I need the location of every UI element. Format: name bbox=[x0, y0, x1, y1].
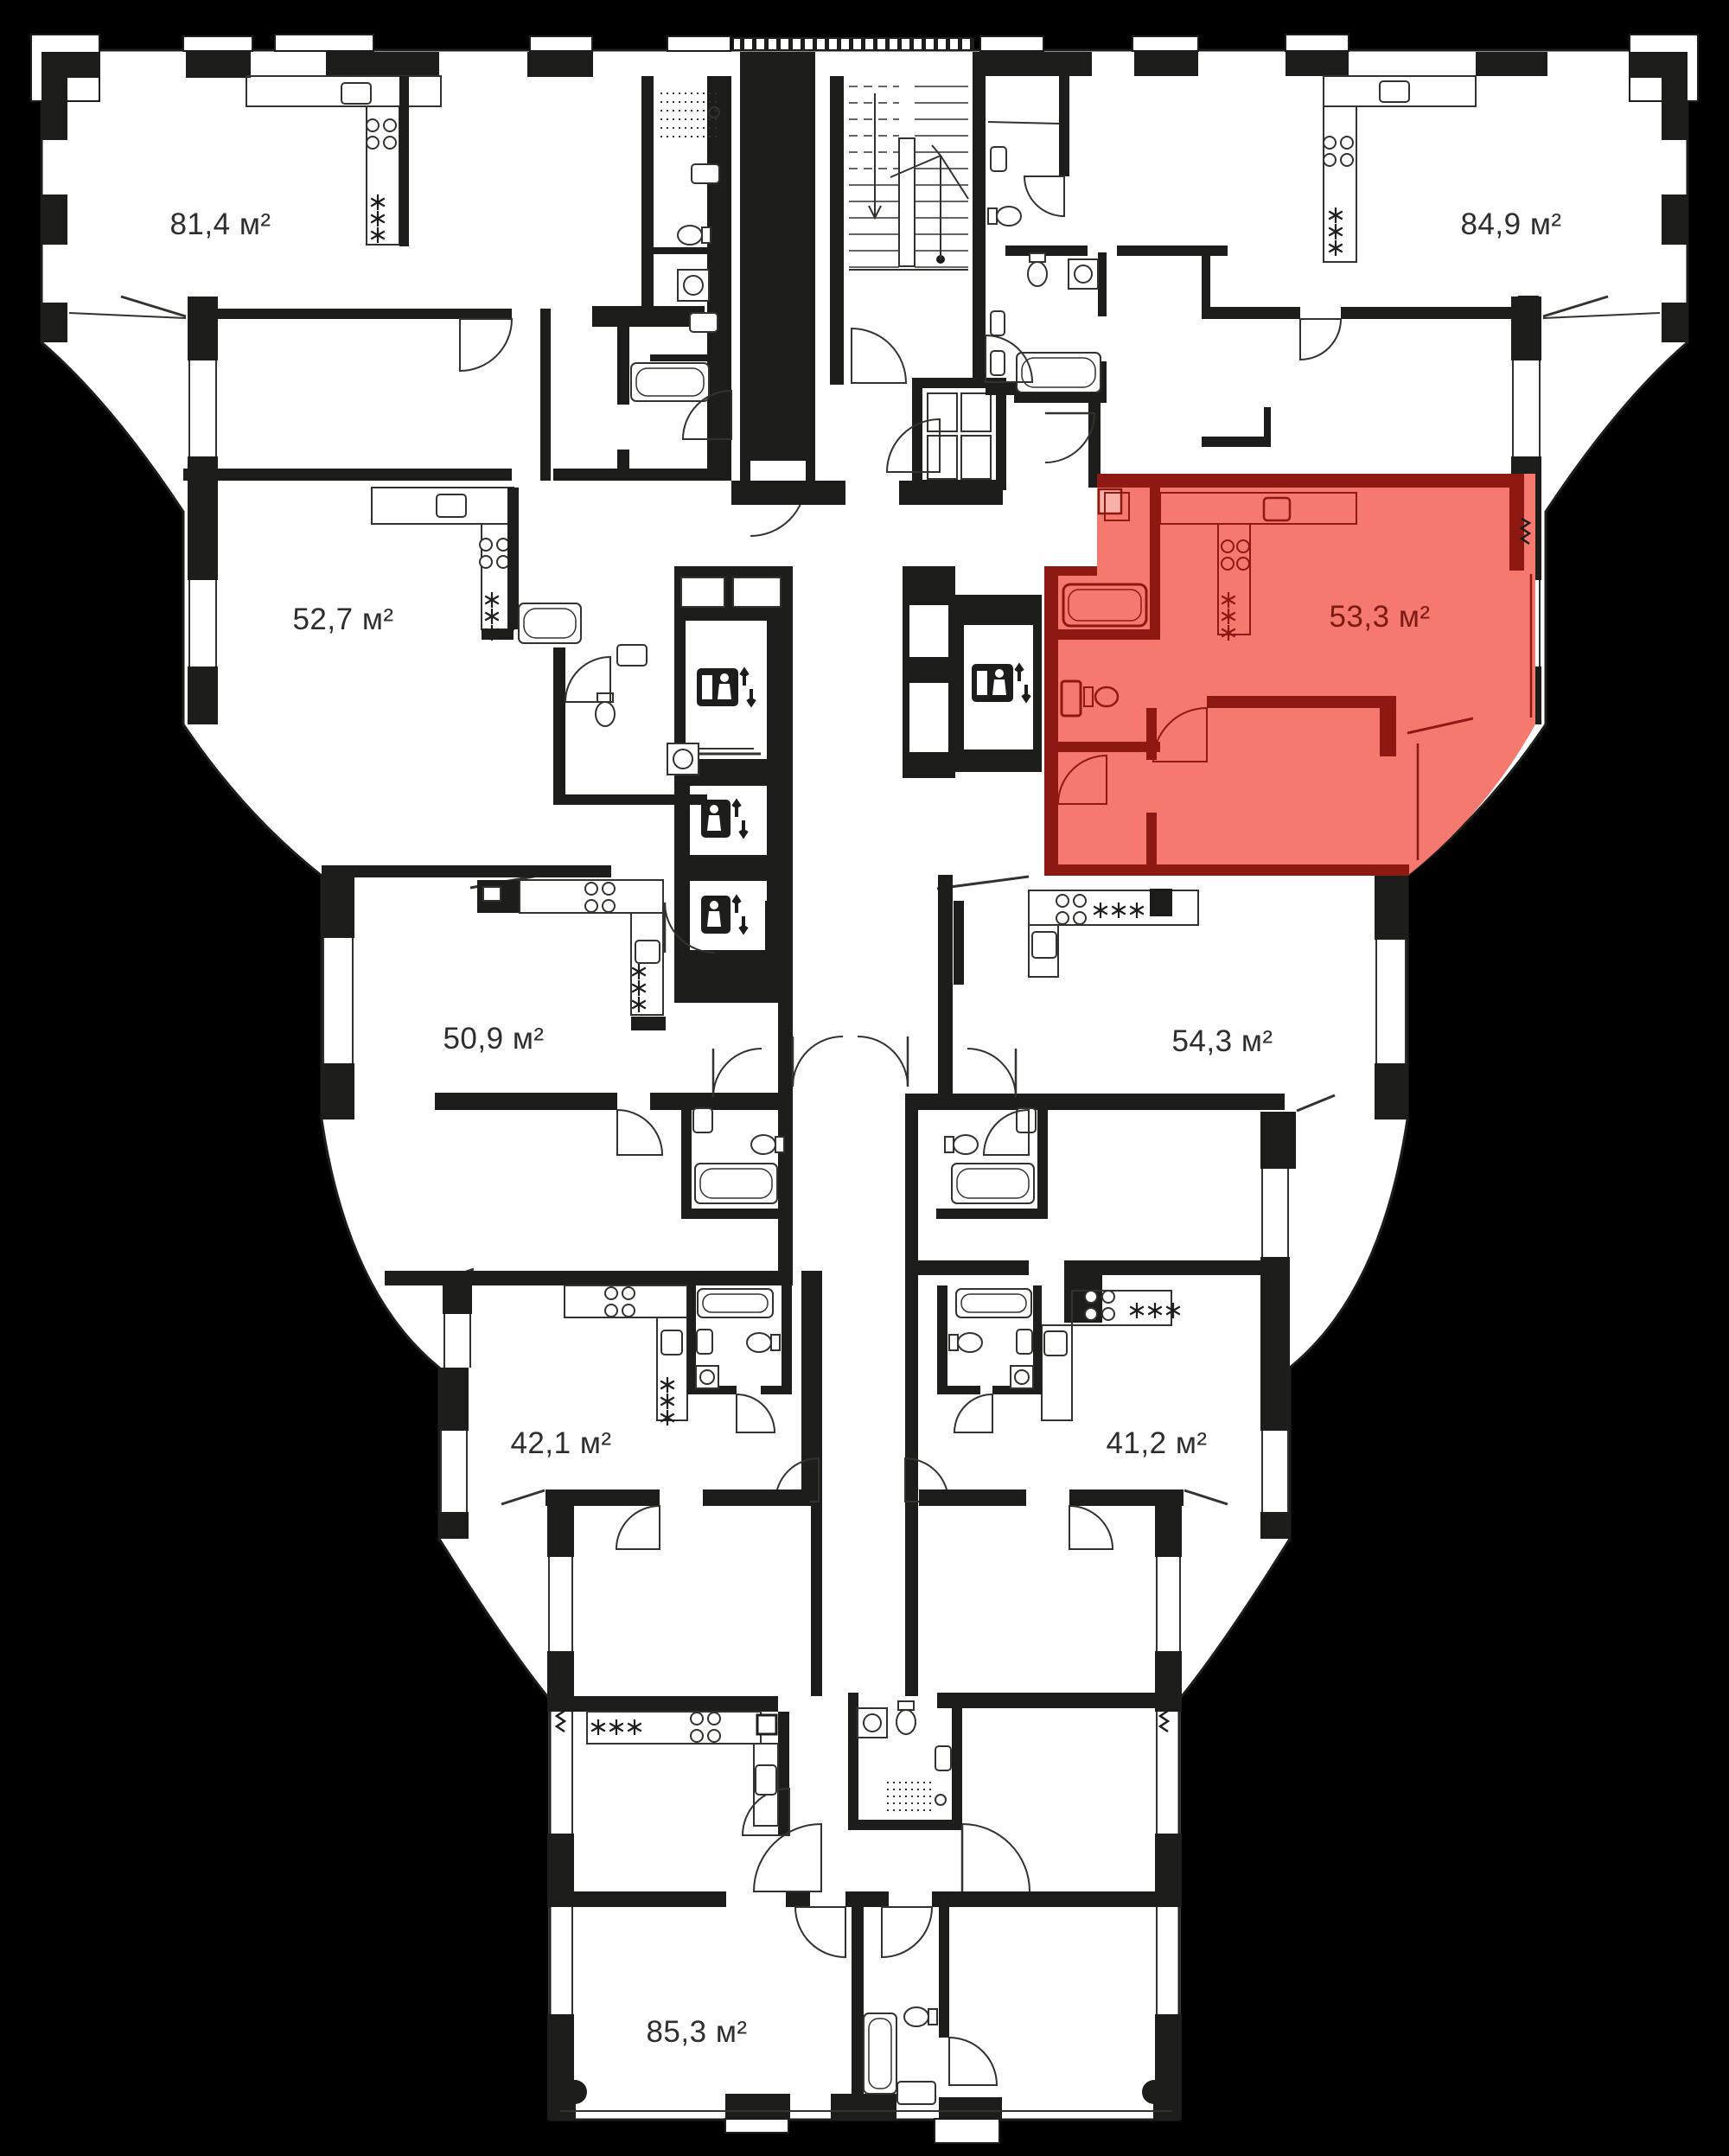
svg-text:54,3 м²: 54,3 м² bbox=[1171, 1024, 1273, 1058]
svg-text:52,7 м²: 52,7 м² bbox=[292, 603, 393, 636]
svg-text:50,9 м²: 50,9 м² bbox=[443, 1022, 544, 1056]
svg-text:85,3 м²: 85,3 м² bbox=[646, 2015, 747, 2049]
svg-text:53,3 м²: 53,3 м² bbox=[1329, 600, 1430, 634]
svg-text:41,2 м²: 41,2 м² bbox=[1106, 1426, 1207, 1460]
svg-text:42,1 м²: 42,1 м² bbox=[510, 1426, 611, 1460]
svg-text:81,4 м²: 81,4 м² bbox=[169, 207, 271, 241]
svg-text:84,9 м²: 84,9 м² bbox=[1460, 207, 1561, 241]
